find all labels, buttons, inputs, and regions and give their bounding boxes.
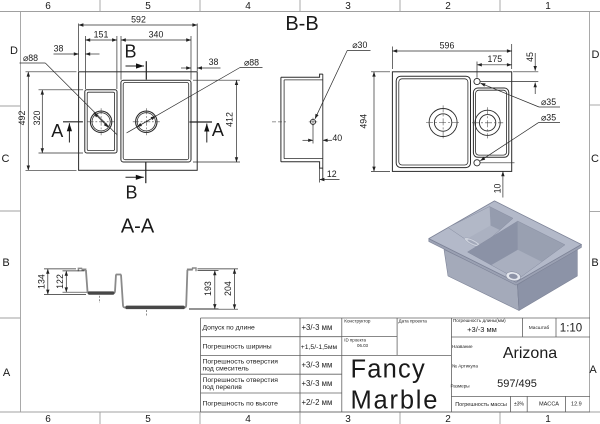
svg-text:⌀35: ⌀35 bbox=[541, 97, 556, 107]
svg-text:A: A bbox=[51, 121, 63, 141]
svg-text:3: 3 bbox=[345, 414, 351, 424]
svg-text:45: 45 bbox=[525, 52, 535, 62]
svg-text:B-B: B-B bbox=[285, 13, 318, 35]
svg-text:6: 6 bbox=[45, 1, 51, 12]
svg-text:Конструктор: Конструктор bbox=[344, 318, 371, 323]
svg-text:134: 134 bbox=[36, 274, 46, 289]
svg-text:A: A bbox=[3, 367, 11, 379]
svg-text:Погрешность массы: Погрешность массы bbox=[455, 402, 507, 408]
svg-text:+2/-2 мм: +2/-2 мм bbox=[302, 398, 333, 407]
svg-text:204: 204 bbox=[223, 281, 233, 296]
svg-text:38: 38 bbox=[54, 44, 64, 54]
svg-text:06.03: 06.03 bbox=[357, 343, 369, 348]
svg-text:Название: Название bbox=[452, 344, 473, 349]
svg-text:под смеситель: под смеситель bbox=[203, 365, 250, 372]
svg-text:597/495: 597/495 bbox=[497, 378, 537, 390]
svg-text:⌀35: ⌀35 bbox=[541, 113, 556, 123]
svg-text:A-A: A-A bbox=[121, 216, 155, 238]
svg-text:⌀88: ⌀88 bbox=[23, 53, 38, 63]
svg-text:+3/-3 мм: +3/-3 мм bbox=[467, 325, 497, 334]
svg-text:1:10: 1:10 bbox=[560, 323, 582, 335]
svg-text:151: 151 bbox=[94, 30, 109, 40]
svg-text:Marble: Marble bbox=[351, 386, 440, 414]
svg-text:под перелив: под перелив bbox=[203, 384, 243, 391]
svg-text:A: A bbox=[589, 364, 597, 376]
svg-text:D: D bbox=[10, 45, 18, 57]
svg-text:D: D bbox=[592, 49, 600, 61]
svg-text:3: 3 bbox=[345, 1, 351, 12]
svg-text:596: 596 bbox=[440, 40, 455, 50]
svg-text:2: 2 bbox=[445, 1, 451, 12]
svg-text:412: 412 bbox=[225, 112, 235, 127]
svg-text:592: 592 bbox=[131, 14, 146, 24]
svg-text:Погрешность по высоте: Погрешность по высоте bbox=[203, 400, 279, 407]
svg-text:МАССА: МАССА bbox=[539, 402, 559, 408]
svg-text:Погрешность ширины: Погрешность ширины bbox=[203, 343, 272, 350]
svg-text:Fancy: Fancy bbox=[351, 355, 426, 383]
svg-text:5: 5 bbox=[145, 414, 151, 424]
svg-text:6: 6 bbox=[45, 414, 51, 424]
svg-text:Погрешность отверстия: Погрешность отверстия bbox=[203, 377, 279, 384]
svg-text:38: 38 bbox=[209, 57, 219, 67]
svg-text:C: C bbox=[591, 153, 599, 165]
svg-text:Размеры: Размеры bbox=[451, 383, 470, 388]
svg-text:+3/-3 мм: +3/-3 мм bbox=[302, 379, 333, 388]
svg-text:4: 4 bbox=[245, 414, 251, 424]
svg-text:⌀88: ⌀88 bbox=[244, 58, 259, 68]
svg-text:122: 122 bbox=[55, 274, 65, 289]
svg-text:12.9: 12.9 bbox=[571, 401, 582, 407]
svg-text:Масштаб: Масштаб bbox=[529, 325, 550, 331]
svg-text:5: 5 bbox=[145, 1, 151, 12]
svg-text:193: 193 bbox=[203, 281, 213, 296]
svg-text:492: 492 bbox=[17, 111, 27, 126]
svg-text:B: B bbox=[2, 257, 9, 269]
svg-text:+3/-3 мм: +3/-3 мм bbox=[302, 323, 333, 332]
svg-text:12: 12 bbox=[327, 169, 337, 179]
svg-text:№ Артикула: № Артикула bbox=[452, 363, 478, 368]
svg-text:Погрешность отверстия: Погрешность отверстия bbox=[203, 358, 279, 365]
svg-text:Дата проекта: Дата проекта bbox=[399, 318, 428, 323]
svg-text:10: 10 bbox=[492, 184, 502, 194]
svg-text:B: B bbox=[124, 42, 136, 62]
svg-text:40: 40 bbox=[332, 133, 342, 143]
svg-text:1: 1 bbox=[545, 414, 551, 424]
svg-text:B: B bbox=[591, 257, 598, 269]
svg-text:2: 2 bbox=[445, 414, 451, 424]
svg-text:4: 4 bbox=[245, 1, 251, 12]
svg-text:Допуск по длине: Допуск по длине bbox=[203, 325, 256, 332]
svg-text:175: 175 bbox=[487, 54, 502, 64]
svg-text:340: 340 bbox=[149, 30, 164, 40]
svg-text:+3/-3 мм: +3/-3 мм bbox=[302, 360, 333, 369]
svg-text:1: 1 bbox=[545, 1, 551, 12]
svg-text:⌀30: ⌀30 bbox=[352, 40, 367, 50]
svg-text:494: 494 bbox=[359, 114, 369, 129]
svg-text:Arizona: Arizona bbox=[503, 345, 557, 362]
svg-text:Погрешность длины(мм): Погрешность длины(мм) bbox=[453, 318, 506, 323]
svg-text:C: C bbox=[2, 153, 10, 165]
svg-text:+1,5/-1,5мм: +1,5/-1,5мм bbox=[301, 344, 338, 351]
svg-text:320: 320 bbox=[32, 111, 42, 126]
svg-text:B: B bbox=[125, 182, 137, 202]
svg-text:±3%: ±3% bbox=[514, 401, 525, 407]
svg-text:A: A bbox=[212, 120, 224, 140]
